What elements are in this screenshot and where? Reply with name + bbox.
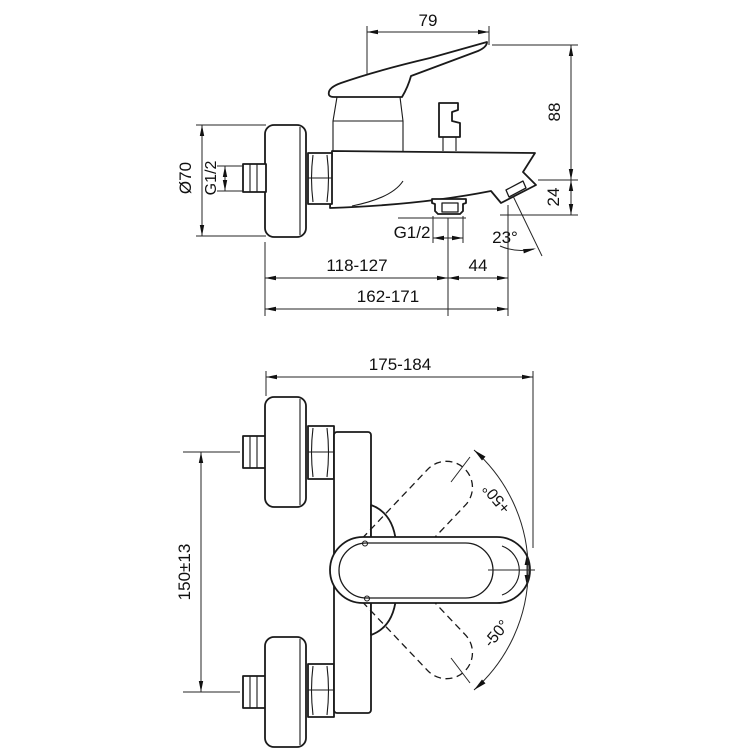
dim-label-overall-width: 175-184 — [369, 355, 431, 374]
dim-label-swing-negative: -50° — [481, 617, 513, 651]
lever-handle-side — [329, 42, 487, 97]
technical-drawing: 79 88 24 Ø70 G1/2 — [0, 0, 750, 750]
dim-label-spout-angle: 23° — [492, 228, 518, 247]
dim-outlet-thread: G1/2 — [394, 216, 466, 243]
inlet-nipple-side — [243, 164, 266, 192]
arrow-down-icon — [569, 169, 573, 180]
arrow-right-icon — [452, 236, 463, 240]
dim-label-outlet-thread: G1/2 — [394, 223, 431, 242]
dim-connection-spacing: 150±13 — [175, 452, 240, 692]
arrow-up-icon — [569, 45, 573, 56]
dim-label-spout-drop: 24 — [544, 188, 563, 207]
dim-label-outlet-to-spout-tip: 44 — [469, 256, 488, 275]
faucet-plan-view — [243, 397, 535, 747]
arrow-right-icon — [478, 30, 489, 34]
dim-label-overall-height: 88 — [545, 103, 564, 122]
arrow-left-icon — [433, 236, 444, 240]
dim-inlet-thread: G1/2 — [203, 161, 243, 196]
dim-label-wall-to-spout-tip: 162-171 — [357, 287, 419, 306]
dim-label-swing-positive: +50° — [480, 480, 515, 517]
dim-spout-angle: 23° — [492, 196, 542, 256]
inlet-nipple-lower — [243, 676, 266, 708]
dim-label-escutcheon-diameter: Ø70 — [176, 162, 195, 194]
arrow-left-icon — [266, 375, 277, 379]
arrow-right-icon — [522, 375, 533, 379]
inlet-nipple-upper — [243, 436, 266, 468]
dim-label-inlet-thread: G1/2 — [203, 161, 220, 196]
arrow-down-icon — [200, 225, 204, 236]
plan-view: +50° -50° 175-184 150±13 — [175, 355, 535, 747]
diverter-knob — [439, 103, 460, 137]
dim-label-wall-to-outlet: 118-127 — [326, 256, 387, 275]
arrow-down-icon — [569, 204, 573, 215]
arrow-angle-icon — [523, 249, 536, 254]
side-view: 79 88 24 Ø70 G1/2 — [176, 11, 578, 316]
diverter-stem — [443, 137, 456, 151]
arrow-up-icon — [200, 125, 204, 136]
dim-label-handle-length: 79 — [419, 11, 438, 30]
arrow-left-icon — [367, 30, 378, 34]
faucet-side-view — [243, 42, 536, 237]
technical-drawing-page: 79 88 24 Ø70 G1/2 — [0, 0, 750, 750]
dim-label-connection-spacing: 150±13 — [175, 544, 194, 601]
arrow-down-icon — [223, 180, 227, 191]
arrow-up-icon — [223, 166, 227, 177]
arrow-down-icon — [199, 681, 203, 692]
arrow-up-icon — [199, 452, 203, 463]
arrow-up-icon — [569, 180, 573, 191]
cartridge-dome — [333, 97, 403, 151]
